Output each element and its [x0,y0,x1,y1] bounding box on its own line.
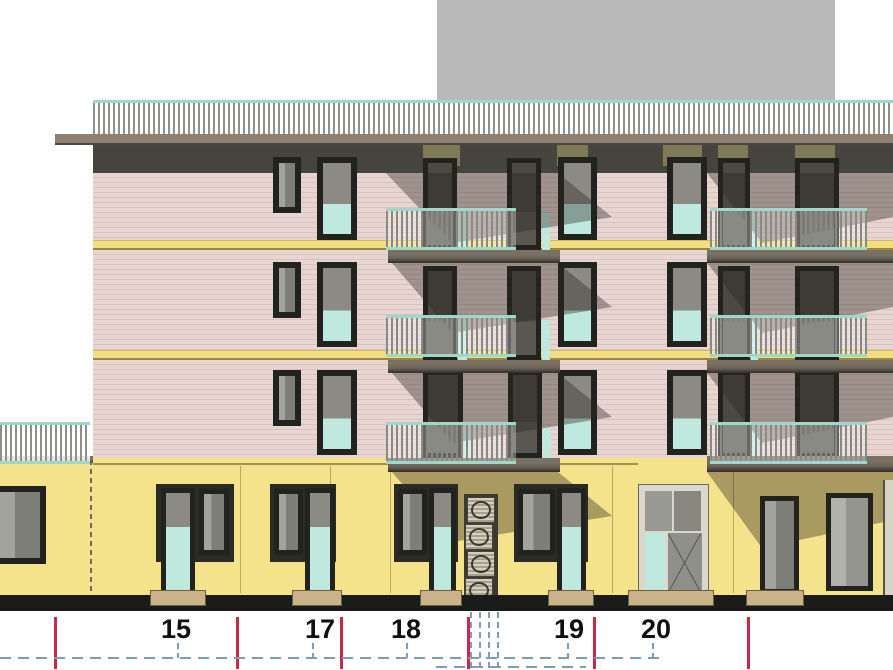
wing-window [0,486,46,564]
leader-stub [312,643,314,658]
dimension-line-red [747,617,750,669]
unit-number-15: 15 [161,616,191,643]
window-glass [403,494,422,550]
circle-ornament [471,501,491,519]
french-window [558,370,597,455]
window-small [273,370,301,426]
door-glass [562,493,581,593]
door-sill [746,590,804,606]
window-glass [279,494,298,550]
window-small [273,262,301,318]
french-window [317,157,357,240]
glass-block-tile [467,551,495,577]
door-sill [150,590,206,606]
window-glass [323,163,351,234]
ground-door [161,488,195,598]
ground-door [305,488,335,598]
balcony-slab [707,360,893,373]
window-glass [673,268,701,341]
entrance-sidelight [645,533,665,593]
balcony-railing [386,208,516,250]
door-glass [166,493,190,593]
unit-number-20: 20 [641,616,671,643]
background-building-block [437,0,835,100]
dimension-line-red [236,617,239,669]
door-sill [292,590,342,606]
leader-stub [406,643,408,658]
door-glass [434,493,451,593]
panel-joint [240,466,241,593]
ground-window [760,496,799,594]
edge-window-frame [883,480,893,596]
balcony-slab [388,360,560,373]
axis-dashed-line [470,612,472,670]
roof-slab [55,134,893,145]
ground-window [398,489,427,555]
door-sill [420,590,462,606]
window-glass [0,492,40,558]
balcony-railing [710,315,867,357]
french-window [667,370,707,455]
door-sill [548,590,594,606]
french-window [558,157,597,240]
window-glass [831,498,868,586]
ground-door [429,488,456,598]
entrance-door [668,533,702,593]
window-glass [564,163,591,234]
entrance-transom-glass [645,491,701,531]
french-window [317,262,357,347]
panel-joint [390,466,391,593]
panel-joint [733,466,734,593]
glass-block-column [464,494,498,604]
window-glass [765,501,794,589]
balcony-slab [707,250,893,263]
window-glass [564,268,591,341]
leader-stub [652,643,654,658]
window-glass [523,494,550,550]
glass-block-tile [465,524,493,550]
french-window [317,370,357,455]
window-glass [323,376,351,449]
window-glass [279,376,295,420]
ground-window [199,489,229,555]
window-glass [564,376,591,449]
ground-window [826,493,873,591]
window-glass [279,268,295,312]
balcony-railing [386,422,516,464]
window-glass [204,494,224,550]
roof-fascia-band [93,145,893,173]
window-glass [673,163,701,234]
door-sidelight [543,428,551,458]
balcony-railing [386,315,516,357]
balcony-railing [710,422,867,464]
french-window [558,262,597,347]
ground-window [518,489,555,555]
axis-dashed-line [497,612,499,670]
unit-number-17: 17 [305,616,335,643]
window-glass [673,376,701,449]
axis-dashed-line [488,612,490,670]
dimension-line-red [54,617,57,669]
french-window [667,262,707,347]
door-glass [513,375,537,453]
door-sidelight [542,213,550,250]
leader-stub [567,643,569,658]
french-window [667,157,707,240]
door-sidelight [542,320,550,360]
dimension-line-red [340,617,343,669]
entrance-step [628,590,714,606]
circle-ornament [469,528,489,546]
unit-number-19: 19 [554,616,584,643]
leader-dashed-line [436,666,586,668]
balcony-slab [388,250,560,263]
panel-joint [612,466,613,593]
unit-number-18: 18 [391,616,421,643]
ground-window [274,489,303,555]
axis-dashed-line [479,612,481,670]
leader-stub [177,643,179,658]
glass-block-tile [467,497,495,523]
entrance-unit [638,484,709,600]
door-glass [310,493,330,593]
window-small [273,157,301,213]
balcony-railing [710,208,867,250]
ground-door [557,488,586,598]
wing-junction-dashed-line [90,460,92,595]
dimension-line-red [593,617,596,669]
elevation-drawing: 15 17 18 19 20 [0,0,893,670]
leader-dashed-line [0,657,660,659]
window-glass [323,268,351,341]
circle-ornament [471,555,491,573]
window-glass [279,163,295,207]
wing-roof-railing [0,422,90,464]
